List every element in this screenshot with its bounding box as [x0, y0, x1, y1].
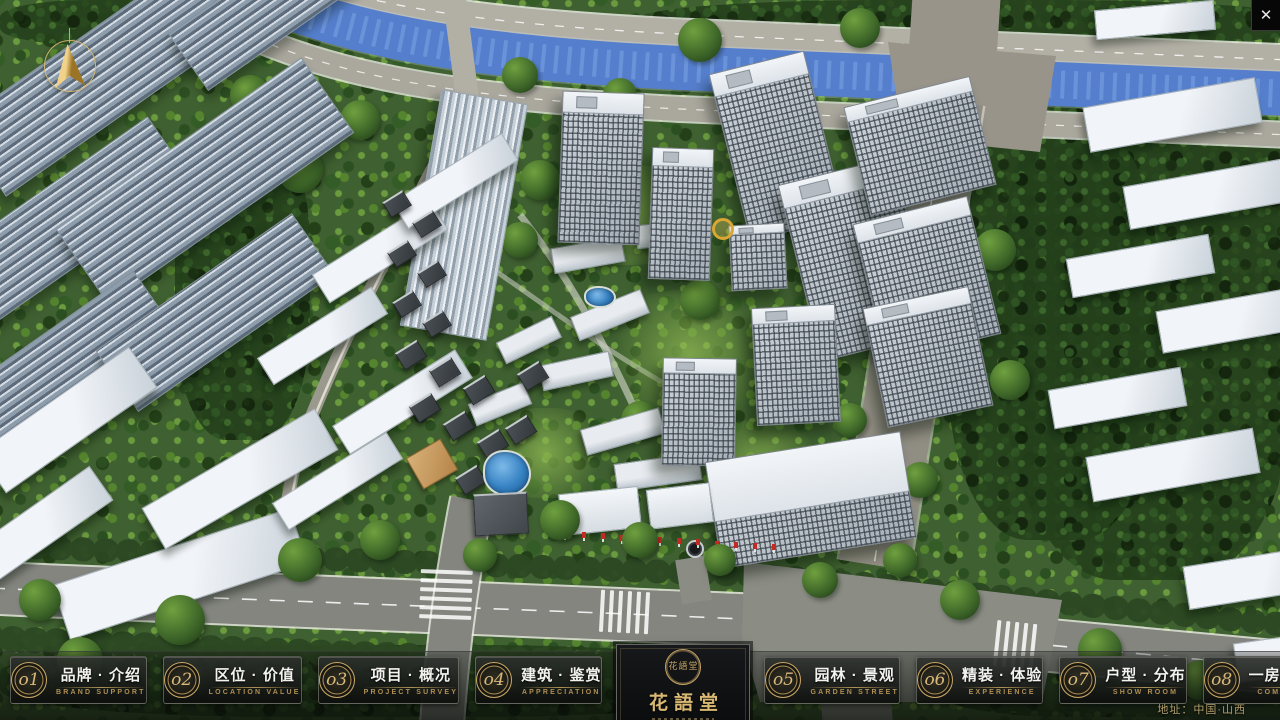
aerial-masterplan-view: ✕ o1 品牌 · 介绍 BRAND SUPPORT o2 区位 · 价值 LO… — [0, 0, 1280, 720]
tree-overlay-layer — [0, 0, 1280, 720]
nav-item-divider — [1105, 687, 1185, 688]
nav-item-divider — [364, 687, 458, 688]
logo-title: 花語堂 — [643, 688, 724, 715]
nav-item-labels: 户型 · 分布 SHOW ROOM — [1105, 664, 1185, 696]
bottom-navbar: o1 品牌 · 介绍 BRAND SUPPORT o2 区位 · 价值 LOCA… — [0, 651, 1280, 720]
nav-item-number: o4 — [484, 670, 505, 690]
nav-item-labels: 一房 · 一景 COMMUNITY — [1249, 664, 1280, 696]
nav-item-label-zh: 项目 · 概况 — [371, 664, 451, 685]
nav-item-label-en: COMMUNITY — [1257, 689, 1280, 696]
nav-item-3[interactable]: o3 项目 · 概况 PROJECT SURVEY — [318, 656, 459, 704]
nav-item-labels: 园林 · 景观 GARDEN STREET — [810, 664, 899, 696]
close-button[interactable]: ✕ — [1251, 0, 1280, 31]
nav-item-number: o2 — [171, 670, 192, 690]
tree — [540, 500, 580, 540]
nav-item-number-badge: o6 — [917, 662, 953, 698]
logo-seal-icon: 花語堂 — [665, 649, 701, 685]
nav-item-label-en: APPRECIATION — [522, 689, 601, 696]
nav-item-number-badge: o3 — [319, 662, 355, 698]
nav-item-number: o3 — [326, 670, 347, 690]
nav-item-4[interactable]: o4 建筑 · 鉴赏 APPRECIATION — [475, 656, 602, 704]
nav-item-label-zh: 户型 · 分布 — [1105, 664, 1185, 685]
tree — [19, 579, 61, 621]
nav-item-number: o1 — [18, 670, 39, 690]
nav-item-divider — [56, 687, 146, 688]
compass — [40, 28, 98, 96]
nav-group-right: o5 园林 · 景观 GARDEN STREET o6 精装 · 体验 EXPE… — [764, 656, 1280, 704]
nav-item-label-en: EXPERIENCE — [969, 689, 1036, 696]
nav-item-number: o8 — [1211, 670, 1232, 690]
nav-item-number: o7 — [1068, 670, 1089, 690]
close-icon: ✕ — [1260, 6, 1273, 24]
nav-item-number-badge: o7 — [1060, 662, 1096, 698]
nav-item-divider — [1249, 687, 1280, 688]
nav-item-number-badge: o1 — [11, 662, 47, 698]
tree — [278, 538, 322, 582]
nav-item-label-en: LOCATION VALUE — [209, 689, 301, 696]
nav-item-divider — [209, 687, 301, 688]
nav-item-number: o5 — [773, 670, 794, 690]
tree — [704, 544, 736, 576]
nav-item-labels: 品牌 · 介绍 BRAND SUPPORT — [56, 664, 146, 696]
nav-item-labels: 建筑 · 鉴赏 APPRECIATION — [521, 664, 601, 696]
nav-item-labels: 区位 · 价值 LOCATION VALUE — [209, 664, 301, 696]
tree — [155, 595, 205, 645]
nav-item-label-en: SHOW ROOM — [1113, 689, 1178, 696]
logo-panel[interactable]: 花語堂 花語堂 — [616, 644, 750, 720]
nav-item-label-zh: 一房 · 一景 — [1249, 664, 1280, 685]
tree — [940, 580, 980, 620]
nav-item-number-badge: o2 — [164, 662, 200, 698]
nav-item-7[interactable]: o7 户型 · 分布 SHOW ROOM — [1059, 656, 1186, 704]
nav-item-divider — [962, 687, 1042, 688]
nav-item-labels: 精装 · 体验 EXPERIENCE — [962, 664, 1042, 696]
nav-item-label-en: PROJECT SURVEY — [364, 689, 458, 696]
tree — [622, 522, 658, 558]
project-address: 地址：中国·山西 — [1157, 701, 1246, 717]
nav-item-8[interactable]: o8 一房 · 一景 COMMUNITY — [1203, 656, 1280, 704]
nav-item-labels: 项目 · 概况 PROJECT SURVEY — [364, 664, 458, 696]
tree — [802, 562, 838, 598]
tree — [360, 520, 400, 560]
nav-item-2[interactable]: o2 区位 · 价值 LOCATION VALUE — [163, 656, 302, 704]
nav-item-number: o6 — [924, 670, 945, 690]
nav-item-1[interactable]: o1 品牌 · 介绍 BRAND SUPPORT — [10, 656, 147, 704]
nav-item-label-zh: 精装 · 体验 — [962, 664, 1042, 685]
tree — [883, 543, 917, 577]
nav-item-number-badge: o8 — [1204, 662, 1240, 698]
nav-item-label-zh: 品牌 · 介绍 — [61, 664, 141, 685]
nav-item-number-badge: o5 — [765, 662, 801, 698]
nav-item-label-en: GARDEN STREET — [810, 689, 899, 696]
nav-item-divider — [810, 687, 899, 688]
nav-item-label-zh: 建筑 · 鉴赏 — [521, 664, 601, 685]
nav-group-left: o1 品牌 · 介绍 BRAND SUPPORT o2 区位 · 价值 LOCA… — [10, 656, 602, 704]
nav-item-number-badge: o4 — [476, 662, 512, 698]
nav-item-6[interactable]: o6 精装 · 体验 EXPERIENCE — [916, 656, 1043, 704]
nav-item-label-zh: 区位 · 价值 — [214, 664, 294, 685]
tree — [463, 538, 497, 572]
nav-item-label-en: BRAND SUPPORT — [56, 689, 146, 696]
nav-item-label-zh: 园林 · 景观 — [815, 664, 895, 685]
nav-item-divider — [521, 687, 601, 688]
nav-item-5[interactable]: o5 园林 · 景观 GARDEN STREET — [764, 656, 900, 704]
